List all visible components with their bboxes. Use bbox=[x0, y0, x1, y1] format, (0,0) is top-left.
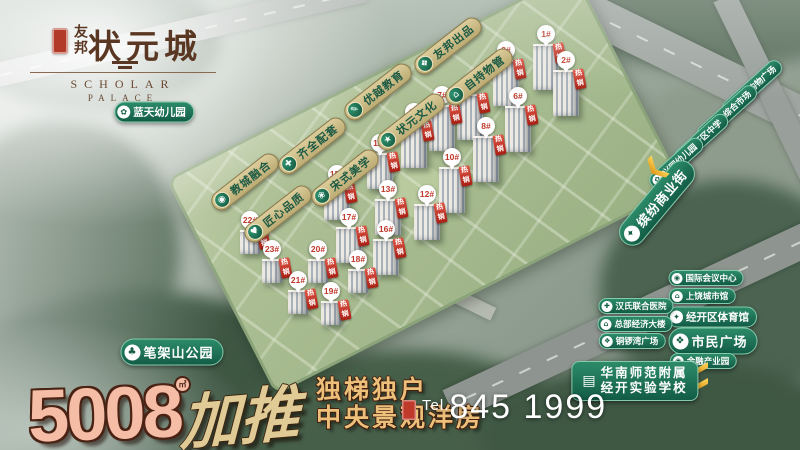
chevron bbox=[642, 155, 670, 183]
phone-block: Tel.845 1999 bbox=[422, 388, 607, 427]
gate-emblem-icon bbox=[112, 61, 138, 69]
red-seal-icon bbox=[402, 400, 416, 420]
school-label-line1: 华南师范附属 bbox=[601, 366, 688, 381]
tel-number: 845 1999 bbox=[449, 388, 607, 426]
logo-subtitle-en: SCHOLAR bbox=[30, 77, 216, 92]
tel-label: Tel. bbox=[422, 397, 449, 414]
promo-action-text: 加推 bbox=[180, 386, 301, 450]
street-gold-arrow-icon bbox=[640, 155, 670, 185]
school-label-line2: 经开实验学校 bbox=[601, 381, 688, 396]
red-seal-icon bbox=[52, 28, 68, 54]
logo-subtitle-en2: PALACE bbox=[30, 93, 216, 103]
promo-area-number: 5008 bbox=[27, 378, 182, 448]
brand-name: 友邦 bbox=[70, 24, 90, 56]
project-title: 状元城 bbox=[88, 20, 202, 68]
brand-logo: 友邦 状元城 SCHOLAR PALACE bbox=[30, 14, 220, 106]
promo-strip: 5008 ㎡ 加推 独梯独户 中央景观洋房 Tel.845 1999 bbox=[28, 368, 598, 448]
logo-divider bbox=[30, 72, 216, 73]
aerial-masterplan-poster: 热销1#热销2#热销3#热销5#热销6#热销7#热销8#热销9#热销10#热销1… bbox=[0, 0, 800, 450]
